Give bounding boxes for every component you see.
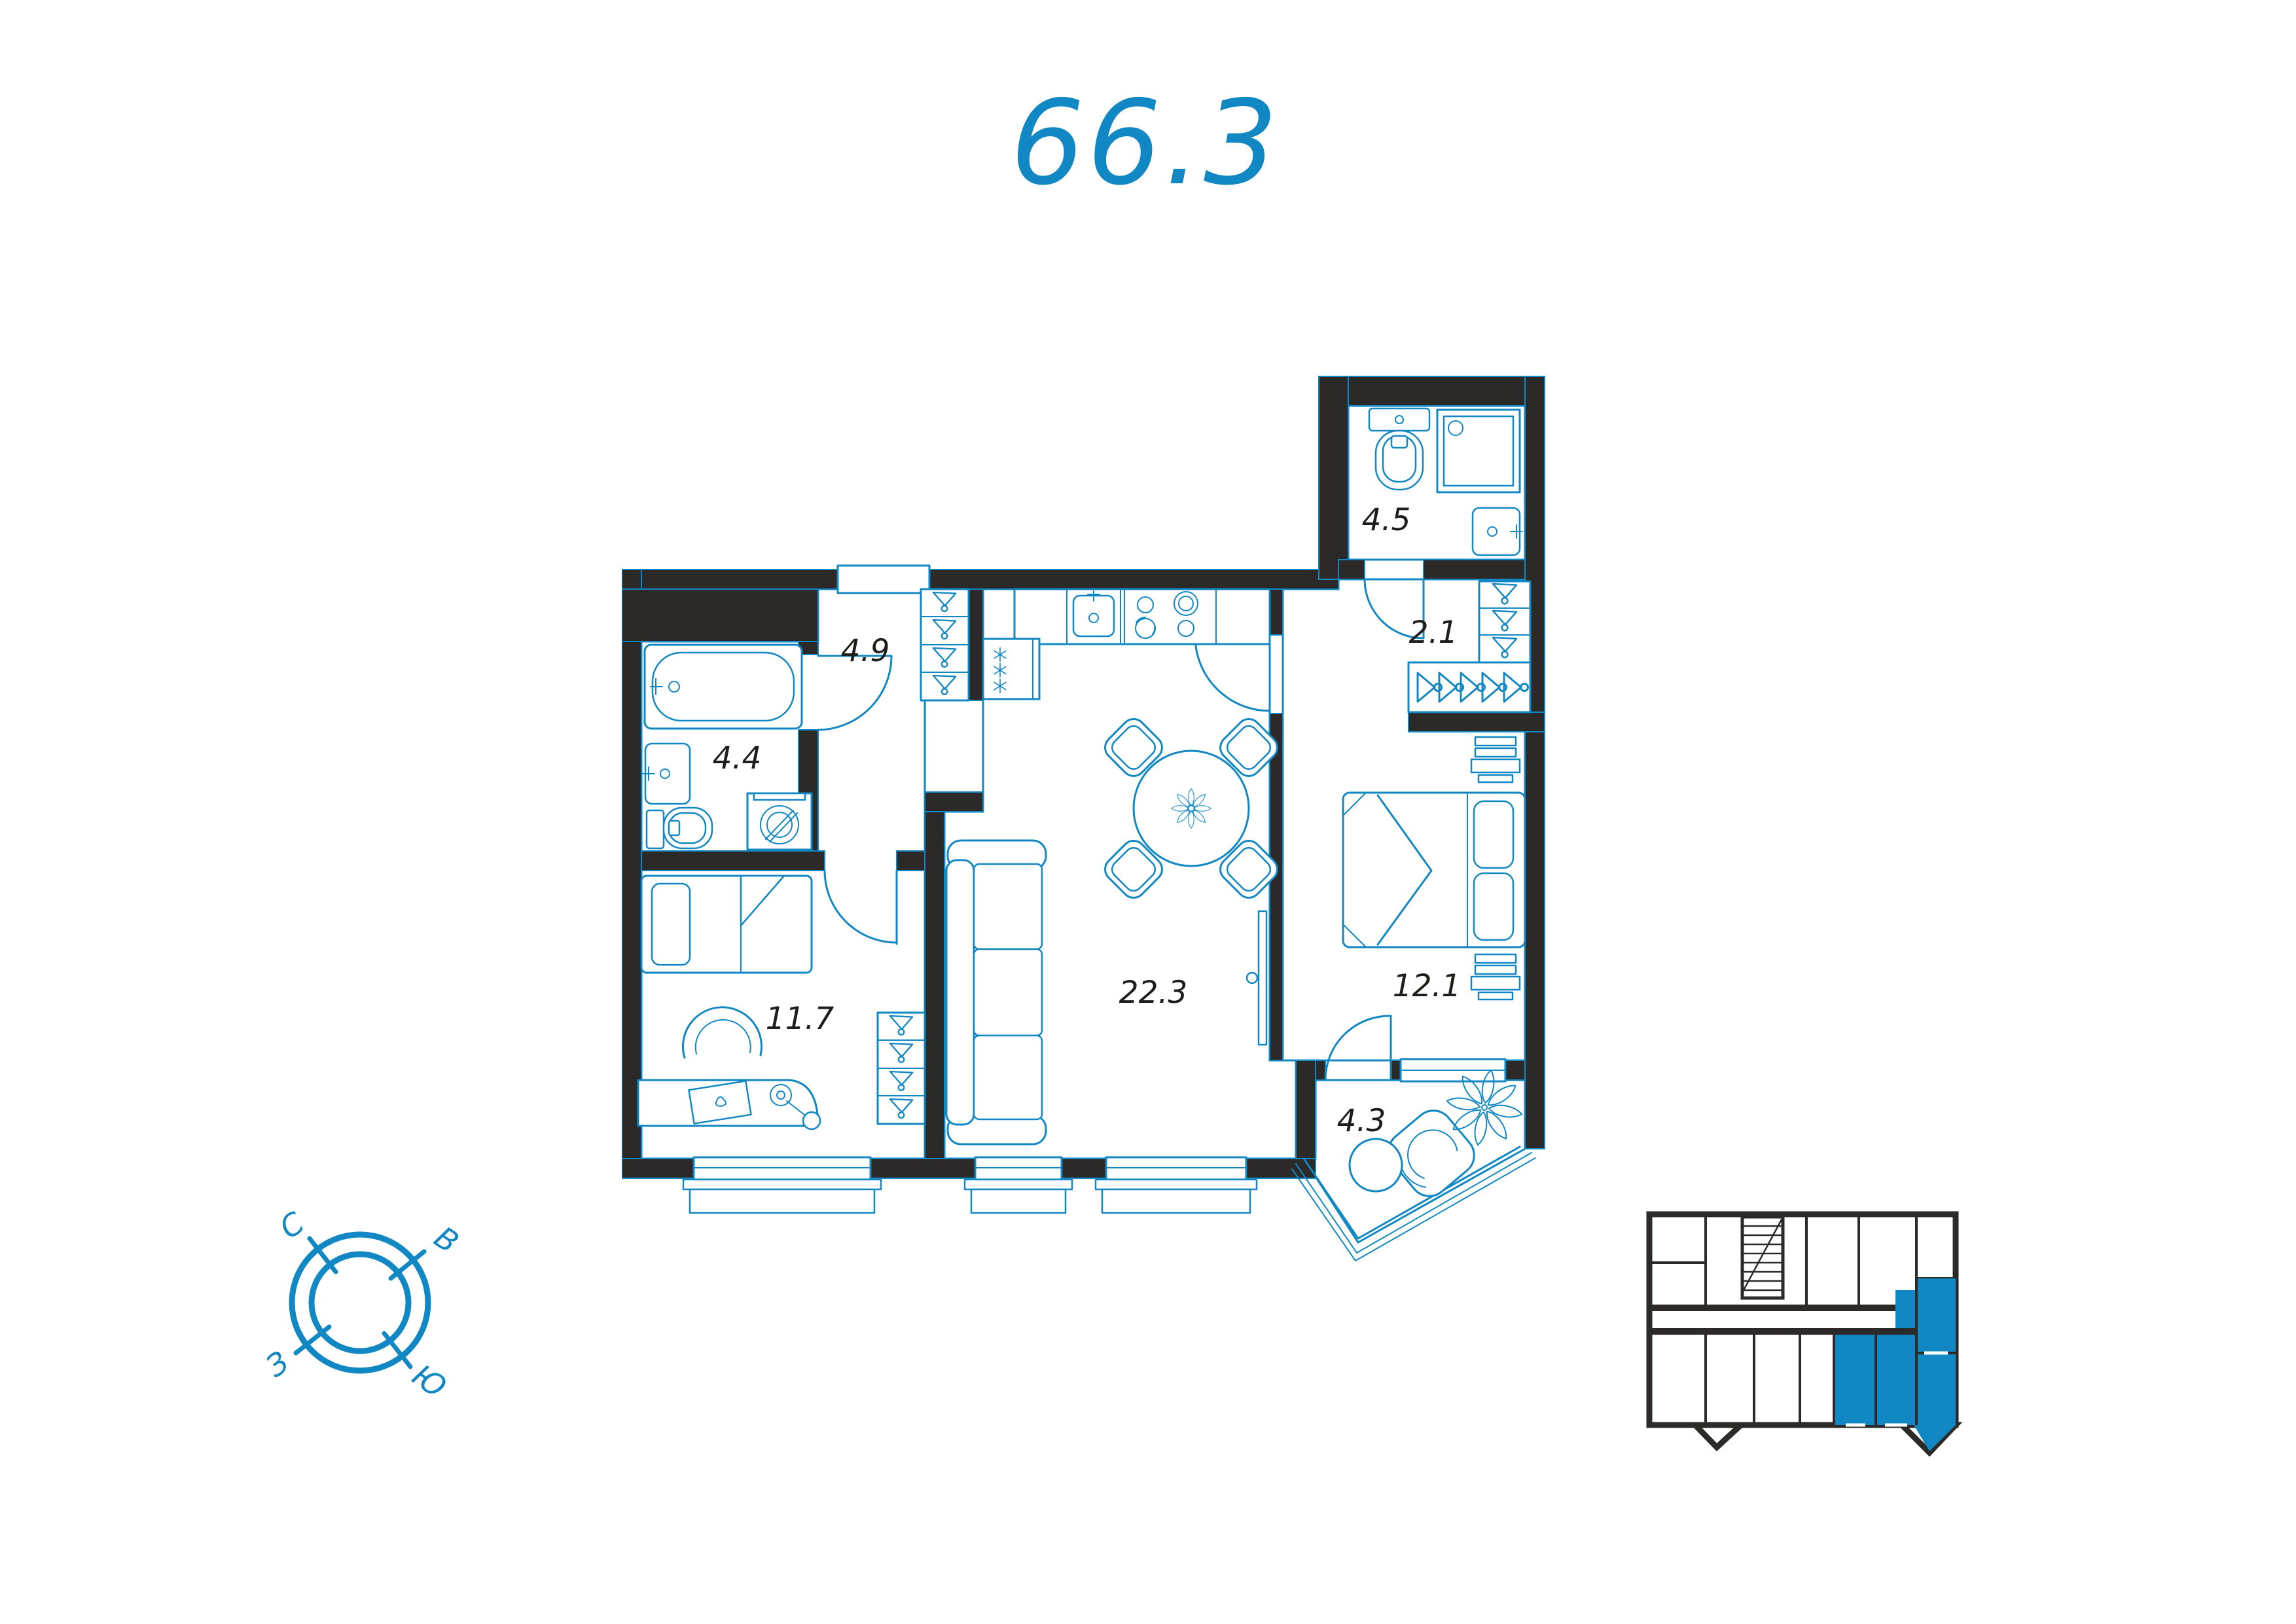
page-title: 66.3 <box>851 75 1440 211</box>
single-bed-symbol <box>641 876 812 973</box>
entrance-door-opening <box>838 566 929 593</box>
toilet-symbol-top <box>1369 408 1429 490</box>
window-living-1 <box>965 1157 1072 1213</box>
wardrobe-closet-rail <box>1408 662 1530 712</box>
wardrobe-bedroom-small <box>878 1013 925 1124</box>
compass-inner-ring <box>312 1254 408 1351</box>
wardrobe-closet-vertical <box>1479 581 1530 662</box>
fridge-symbol <box>983 639 1039 699</box>
bathtub-symbol <box>645 645 802 729</box>
compass-south-label: Ю <box>406 1358 453 1405</box>
kitchen-sink-symbol <box>1073 591 1114 636</box>
floor-plan: 4.5 2.1 4.9 4.4 11.7 22.3 12.1 4.3 <box>622 373 1577 1283</box>
shower-symbol <box>1437 410 1520 492</box>
window-living-2 <box>1096 1157 1257 1213</box>
sink-symbol-bathroom <box>643 744 690 804</box>
desk-symbol <box>638 1080 820 1129</box>
compass-north-label: С <box>273 1205 310 1246</box>
compass-east-label: В <box>428 1219 465 1260</box>
sink-symbol-top <box>1473 508 1522 555</box>
compass-ticks <box>296 1238 424 1367</box>
label-hallway: 4.9 <box>841 633 890 669</box>
window-bedroom-small <box>683 1157 881 1213</box>
label-bedroom-small: 11.7 <box>766 1001 834 1037</box>
label-living-kitchen: 22.3 <box>1119 975 1188 1011</box>
dresser-top-icon <box>1471 737 1520 782</box>
dresser-bottom-icon <box>1471 954 1520 1000</box>
key-plan <box>1643 1208 1977 1483</box>
wardrobe-hallway <box>921 589 969 700</box>
compass: С В З Ю <box>259 1201 481 1424</box>
label-balcony: 4.3 <box>1337 1103 1386 1139</box>
toilet-symbol-bathroom <box>647 808 712 848</box>
compass-west-label: З <box>259 1344 295 1384</box>
label-bathroom: 4.4 <box>713 740 762 776</box>
window-bedroom-balcony <box>1401 1059 1505 1081</box>
washing-machine-symbol <box>747 793 812 850</box>
sofa-symbol <box>946 840 1046 1144</box>
double-bed-symbol <box>1343 793 1525 947</box>
floor-plan-page: 66.3 <box>0 0 2296 1624</box>
label-bedroom: 12.1 <box>1393 968 1462 1004</box>
label-closet: 2.1 <box>1409 615 1458 651</box>
label-bathroom-top: 4.5 <box>1362 502 1411 538</box>
